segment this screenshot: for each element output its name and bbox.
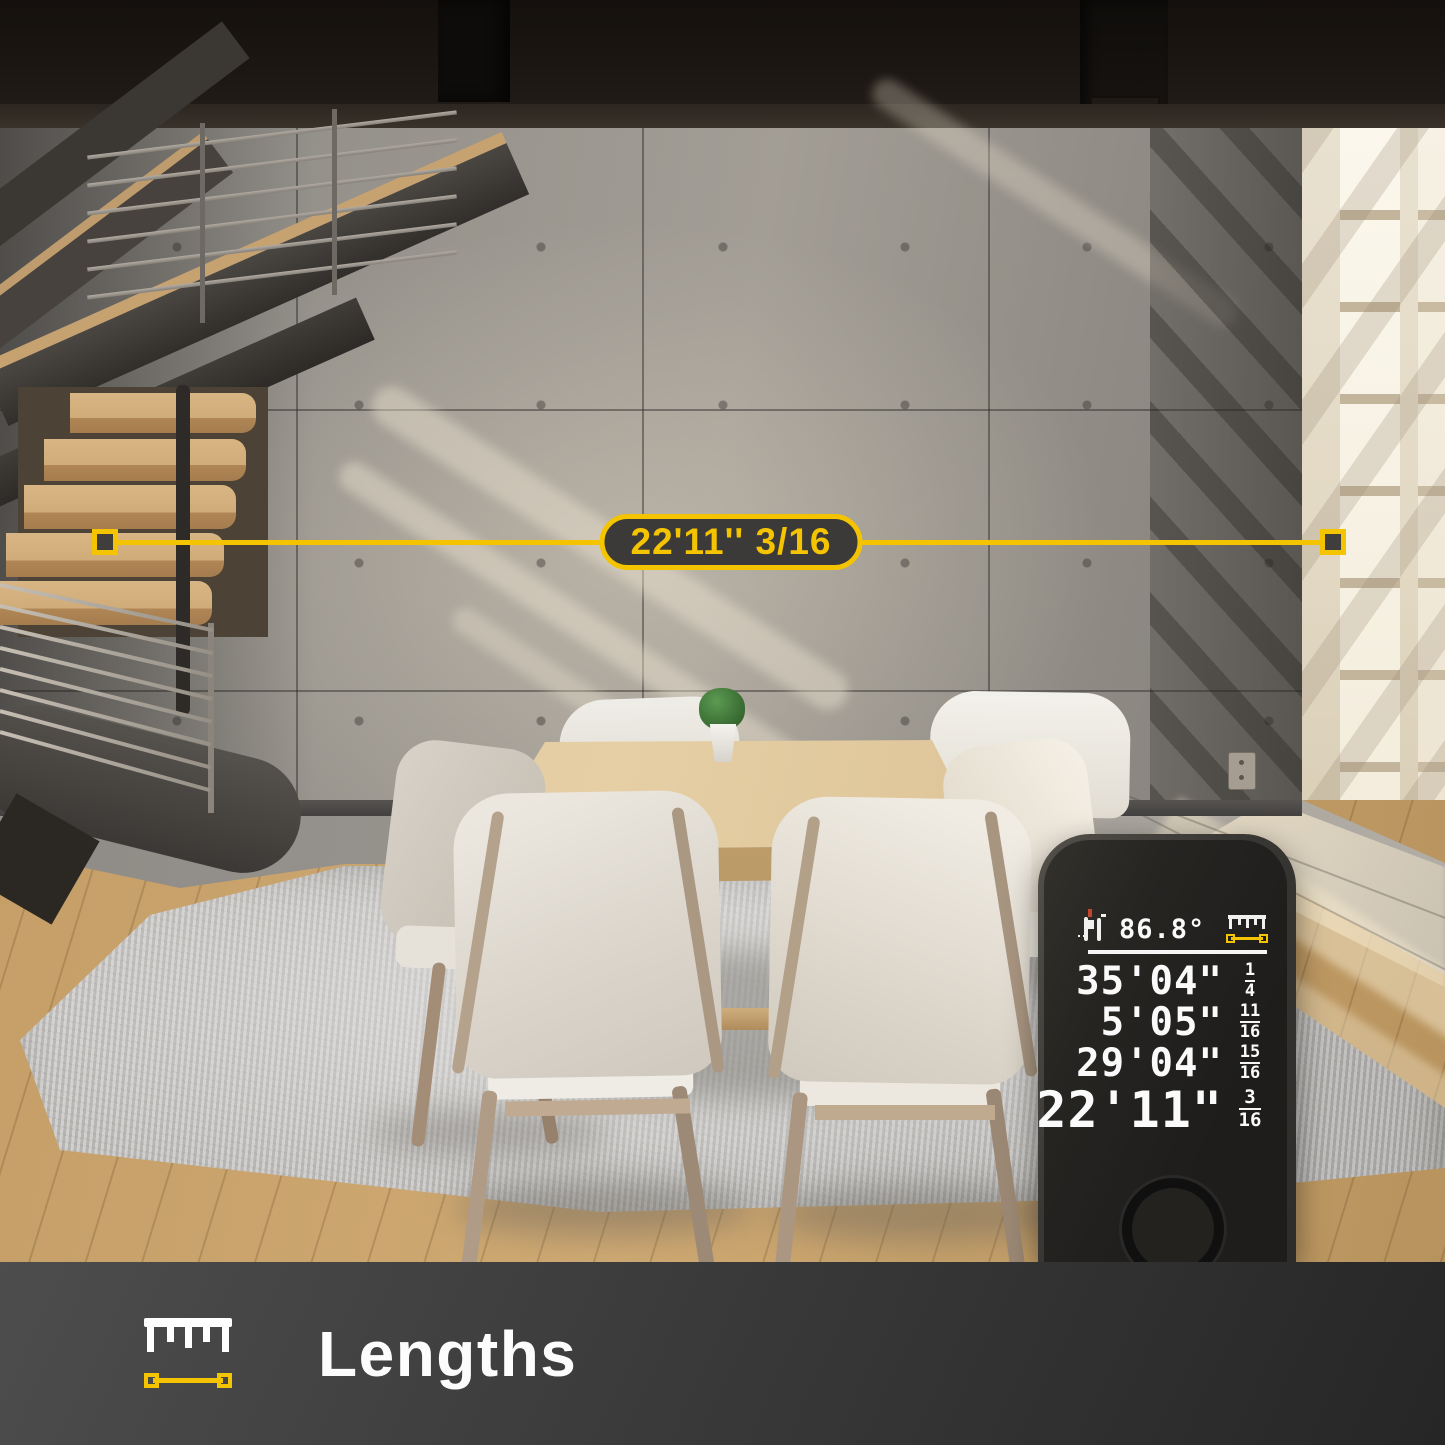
- reading-row: 35'04" 1 4: [1076, 962, 1267, 1001]
- laser-measure-device: 86.8°: [1038, 834, 1296, 1262]
- device-status-bar: 86.8°: [1084, 912, 1267, 946]
- stair-step: [24, 485, 236, 529]
- ruler-icon: [1228, 915, 1266, 929]
- length-mode-indicator: [1226, 915, 1268, 944]
- stair-step: [70, 393, 256, 433]
- device-body: 86.8°: [1044, 840, 1287, 1262]
- measurement-label-pill: 22'11'' 3/16: [600, 514, 863, 570]
- fraction: 3 16: [1233, 1088, 1267, 1131]
- measurement-history: 35'04" 1 4 5'05" 11 16 2: [1084, 962, 1267, 1137]
- fraction: 1 4: [1233, 962, 1267, 1001]
- laser-meter-icon: [1084, 917, 1088, 941]
- railing-post: [200, 123, 205, 323]
- chair-stretcher: [815, 1105, 995, 1120]
- reading-row: 29'04" 15 16: [1076, 1044, 1267, 1083]
- reading-row: 5'05" 11 16: [1101, 1003, 1267, 1042]
- measurement-label: 22'11'' 3/16: [631, 521, 832, 563]
- lengths-ruler-icon: [142, 1318, 234, 1389]
- stair-step: [44, 439, 246, 481]
- battery-icon: [1097, 918, 1101, 941]
- fraction: 11 16: [1233, 1003, 1267, 1042]
- window-wall: [1302, 128, 1445, 868]
- device-screen: 86.8°: [1084, 912, 1267, 1142]
- chair-shadow: [770, 1185, 1070, 1241]
- railing-post: [332, 109, 337, 295]
- measure-endpoint-left: [92, 529, 118, 555]
- ruler-icon: [144, 1318, 232, 1354]
- window-frame-shadows: [1302, 128, 1445, 868]
- footer-bar: Lengths: [0, 1262, 1445, 1445]
- screen-divider: [1088, 950, 1267, 954]
- measure-line-icon: [1226, 933, 1268, 944]
- wall-shadow-band: [1150, 128, 1302, 816]
- fraction: 15 16: [1233, 1044, 1267, 1083]
- laser-ray-icon: [1088, 909, 1092, 917]
- potted-plant: [699, 688, 745, 730]
- measure-endpoint-right: [1320, 529, 1346, 555]
- tilt-angle-readout: 86.8°: [1119, 914, 1205, 945]
- measure-line-icon: [144, 1371, 232, 1389]
- ceiling-beam-left: [438, 0, 510, 102]
- lengths-feature-card: 22'11'' 3/16 86.8°: [0, 0, 1445, 1445]
- feature-title: Lengths: [318, 1317, 577, 1391]
- reading-row-current: 22'11" 3 16: [1036, 1085, 1267, 1135]
- chair-shadow: [455, 1180, 755, 1236]
- wall-outlet: [1228, 752, 1256, 790]
